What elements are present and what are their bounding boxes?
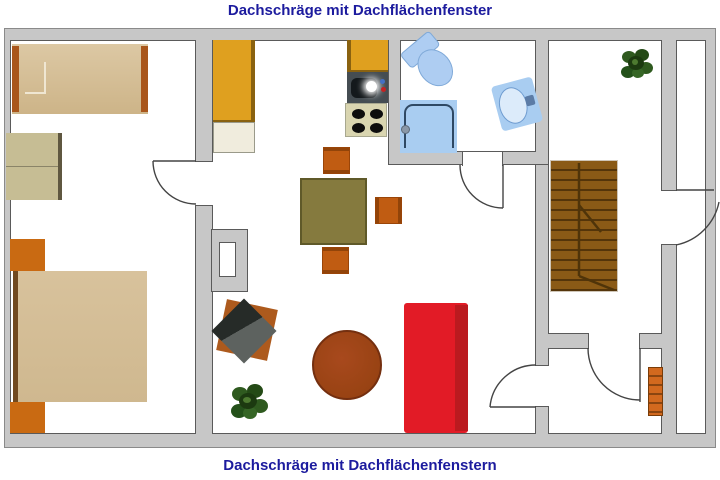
kitchen-sink [347, 72, 388, 103]
dining-table [300, 178, 367, 245]
stove [345, 103, 387, 137]
shower [400, 100, 457, 153]
dining-chair-bottom [322, 247, 349, 274]
stove-burner [370, 109, 383, 119]
nightstand-bottom [10, 402, 45, 433]
storage-door-opening-west [535, 365, 549, 407]
bedroom-door-opening [195, 161, 213, 206]
washbasin-faucet [524, 95, 535, 107]
round-coffee-table [312, 330, 382, 400]
single-bed-crease [44, 62, 46, 92]
kitchen-tall-cabinet [213, 40, 255, 122]
staircase [550, 160, 618, 292]
single-bed-headboard [12, 46, 19, 112]
room-storage [548, 348, 662, 434]
single-bed [12, 44, 148, 114]
bathroom-door-opening [462, 152, 503, 166]
single-bed-crease2 [25, 92, 46, 94]
double-bed-headboard [13, 271, 18, 402]
shower-knob [401, 125, 410, 134]
double-bed [13, 271, 147, 402]
floor-plan-page: Dachschräge mit Dachflächenfenster Dachs… [0, 0, 720, 480]
bottom-roof-label: Dachschräge mit Dachflächenfenstern [0, 457, 720, 474]
dining-chair-top [323, 147, 350, 174]
stove-burner [352, 123, 365, 133]
radiator [648, 367, 663, 416]
single-bed-footboard [141, 46, 148, 112]
wardrobe-seam [6, 166, 58, 167]
dining-chair-right [375, 197, 402, 224]
sofa [404, 303, 468, 433]
faucet-cold-dot [380, 79, 385, 84]
faucet-hot-dot [381, 87, 386, 92]
top-roof-label: Dachschräge mit Dachflächenfenster [0, 2, 720, 19]
room-side-corridor [676, 40, 706, 434]
nightstand-top [10, 239, 45, 271]
shower-curtain-rod [404, 104, 454, 148]
sink-highlight [366, 81, 377, 92]
stove-burner [370, 123, 383, 133]
corridor-door-opening [661, 190, 677, 245]
wardrobe [6, 133, 62, 200]
stove-burner [352, 109, 365, 119]
sofa-backrest [455, 305, 468, 431]
kitchen-counter [213, 122, 255, 153]
storage-door-opening-north [588, 333, 640, 349]
chimney-shaft [219, 242, 236, 277]
kitchen-upper-cabinet [347, 40, 388, 72]
